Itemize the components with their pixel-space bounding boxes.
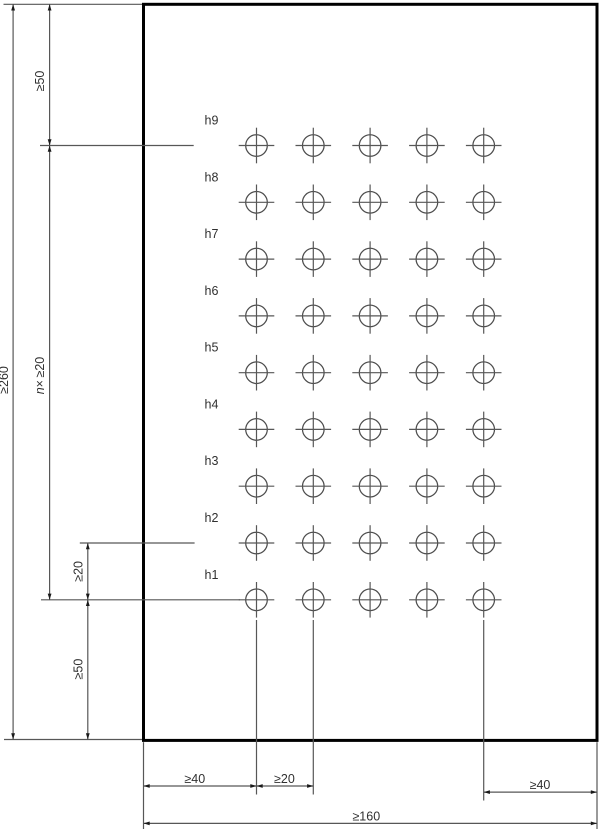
svg-text:h9: h9 bbox=[205, 114, 219, 128]
svg-text:≥20: ≥20 bbox=[274, 772, 295, 786]
svg-text:≥260: ≥260 bbox=[0, 366, 11, 394]
svg-text:h5: h5 bbox=[205, 341, 219, 355]
svg-text:≥50: ≥50 bbox=[71, 659, 85, 680]
svg-text:≥40: ≥40 bbox=[184, 772, 205, 786]
svg-text:≥20: ≥20 bbox=[71, 561, 85, 582]
svg-text:≥160: ≥160 bbox=[352, 809, 380, 823]
svg-text:h3: h3 bbox=[205, 454, 219, 468]
svg-text:h8: h8 bbox=[205, 170, 219, 184]
svg-text:h7: h7 bbox=[205, 227, 219, 241]
svg-text:h2: h2 bbox=[205, 511, 219, 525]
svg-text:≥50: ≥50 bbox=[33, 71, 47, 92]
svg-text:n× ≥20: n× ≥20 bbox=[33, 357, 47, 395]
svg-text:h4: h4 bbox=[205, 397, 219, 411]
svg-text:h1: h1 bbox=[205, 568, 219, 582]
svg-text:h6: h6 bbox=[205, 284, 219, 298]
svg-text:≥40: ≥40 bbox=[530, 778, 551, 792]
